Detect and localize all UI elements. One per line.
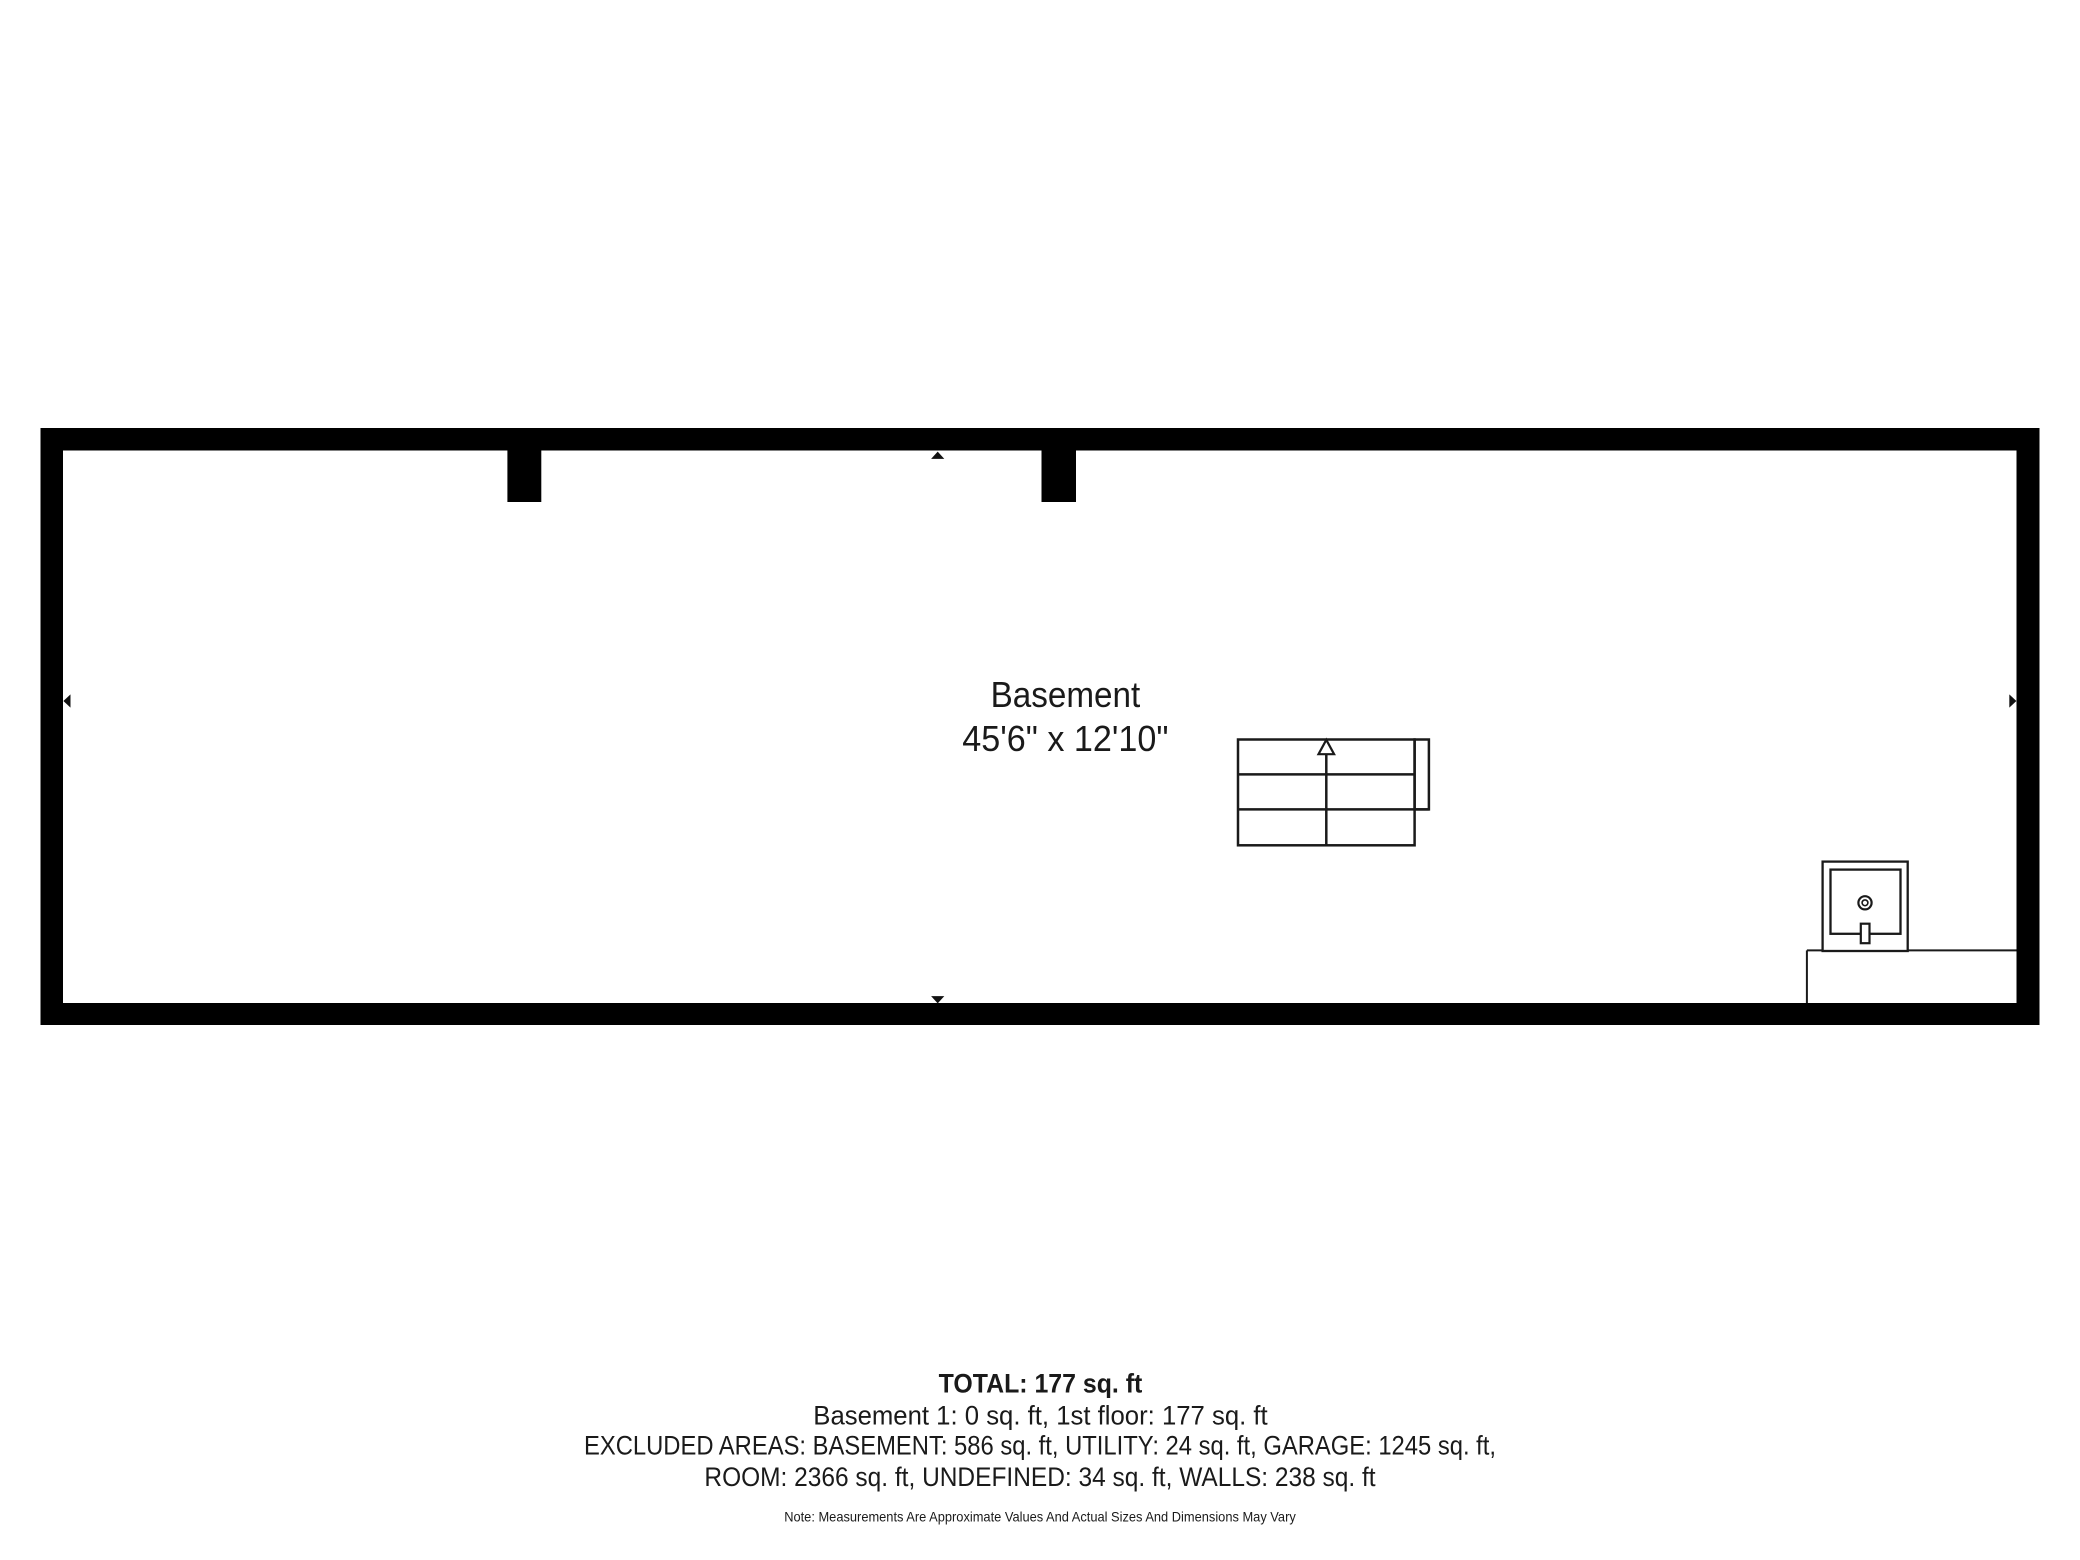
svg-text:TOTAL: 177 sq. ft: TOTAL: 177 sq. ft: [939, 1369, 1143, 1399]
svg-text:Note: Measurements Are Approxi: Note: Measurements Are Approximate Value…: [784, 1509, 1296, 1525]
svg-text:EXCLUDED AREAS: BASEMENT: 586: EXCLUDED AREAS: BASEMENT: 586 sq. ft, UT…: [584, 1430, 1496, 1460]
svg-text:Basement: Basement: [991, 674, 1141, 715]
svg-text:45'6" x 12'10": 45'6" x 12'10": [962, 718, 1168, 759]
svg-text:Basement 1: 0 sq. ft, 1st floo: Basement 1: 0 sq. ft, 1st floor: 177 sq.…: [813, 1401, 1268, 1431]
svg-text:ROOM: 2366 sq. ft, UNDEFINED:: ROOM: 2366 sq. ft, UNDEFINED: 34 sq. ft,…: [704, 1462, 1376, 1492]
